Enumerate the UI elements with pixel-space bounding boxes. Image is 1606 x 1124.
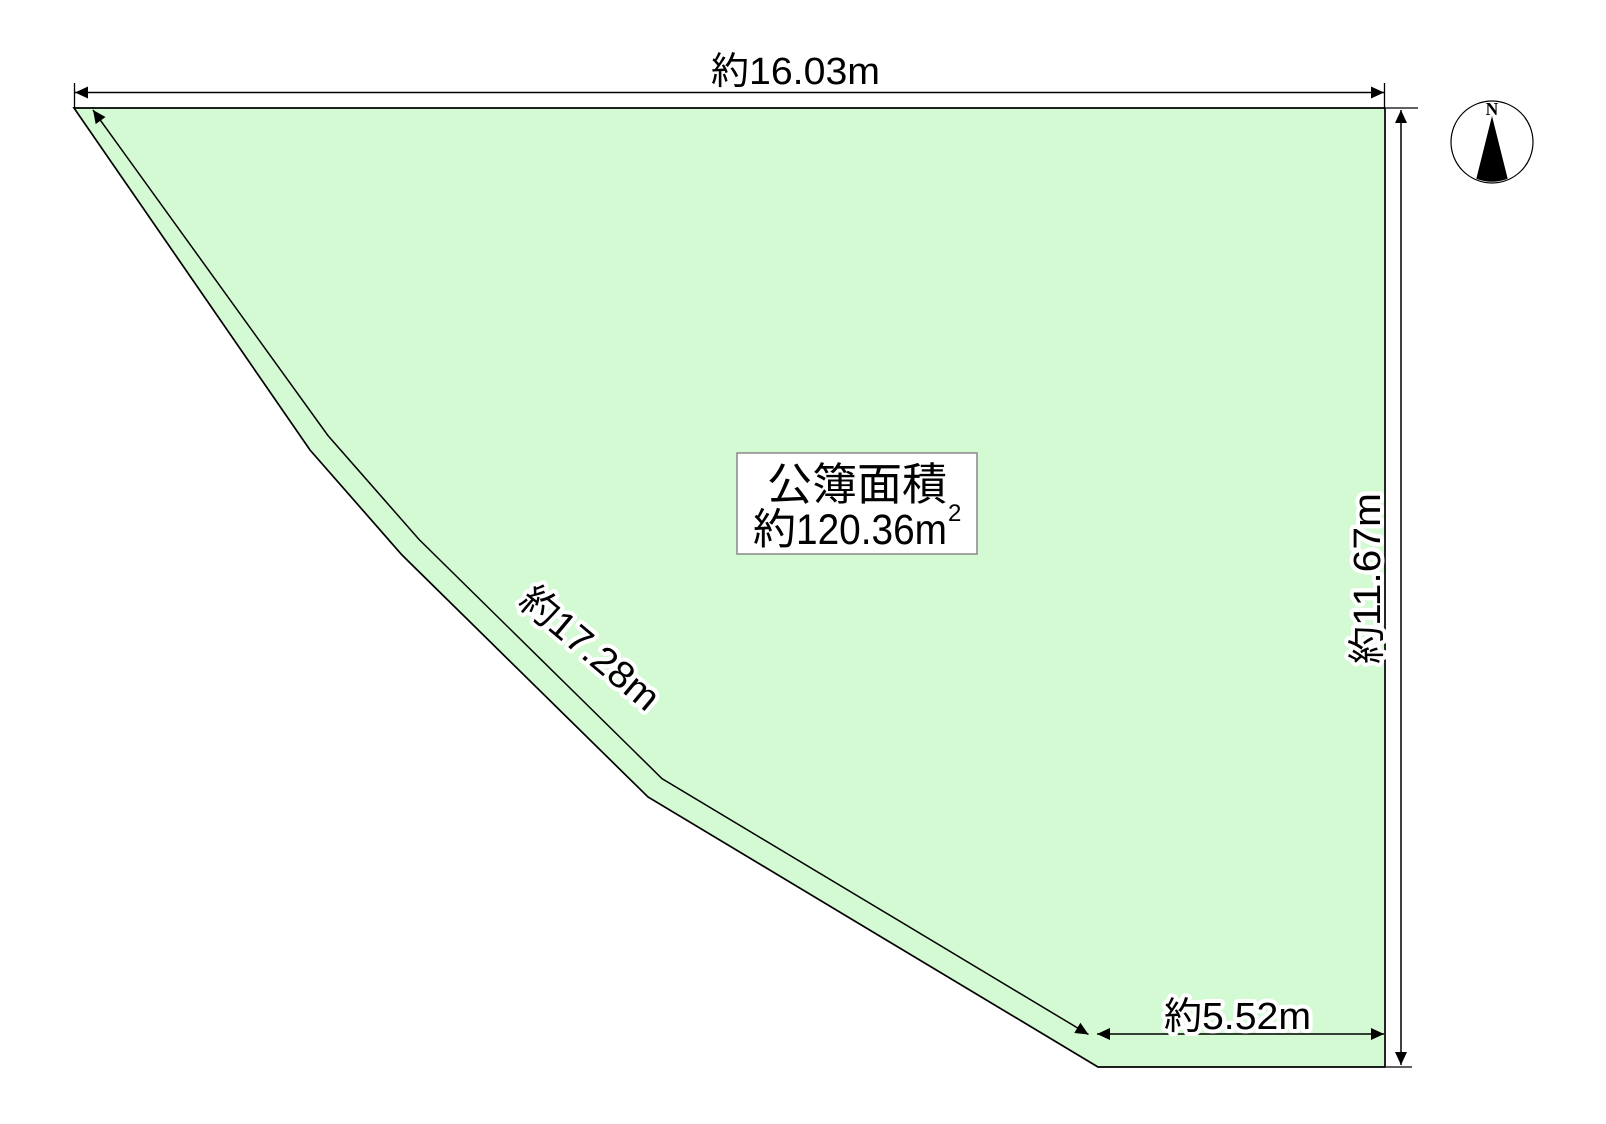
svg-text:120.36m: 120.36m: [796, 506, 947, 554]
svg-text:11.67m: 11.67m: [1347, 493, 1389, 626]
svg-text:2: 2: [948, 500, 961, 527]
svg-text:5.52m: 5.52m: [1202, 996, 1311, 1038]
svg-text:16.03m: 16.03m: [749, 51, 880, 93]
svg-text:N: N: [1486, 99, 1499, 119]
